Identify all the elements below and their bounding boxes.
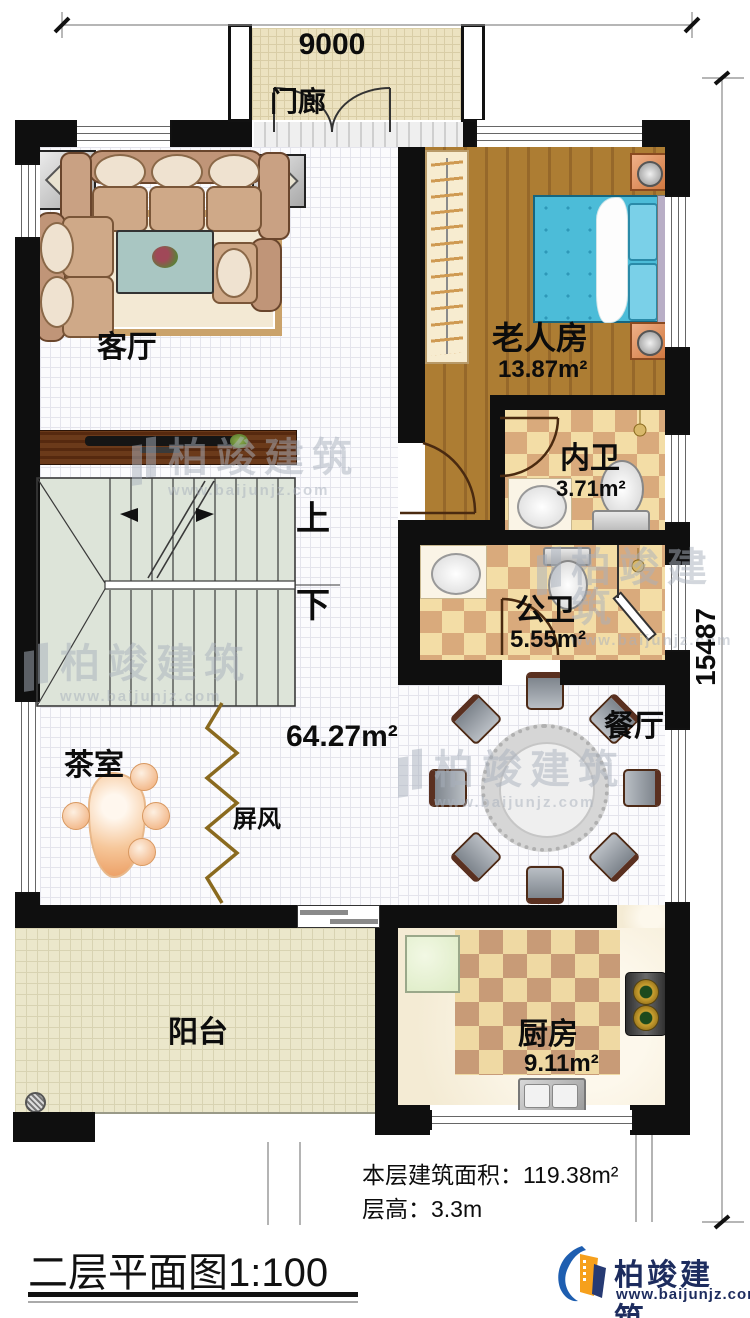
dining-chair: [429, 769, 467, 807]
brand-name: 柏竣建筑: [614, 1250, 742, 1318]
wall: [665, 120, 690, 195]
tea-stool: [128, 838, 156, 866]
dimension-top-value: 9000: [262, 30, 402, 60]
burner: [633, 1005, 659, 1031]
room-label-inner-bath: 内卫: [560, 444, 620, 474]
wall: [560, 660, 690, 685]
room-label-dining: 餐厅: [604, 712, 664, 742]
wall: [463, 120, 475, 147]
window: [75, 120, 172, 147]
tv: [85, 436, 235, 446]
wall: [490, 410, 505, 530]
blanket: [596, 197, 628, 323]
plant: [230, 434, 248, 448]
lamp: [637, 161, 663, 187]
public-bath-sink-counter: [420, 545, 487, 599]
window: [665, 433, 690, 524]
wall: [398, 147, 425, 443]
title-underline-thin: [28, 1301, 358, 1303]
kitchen-window: [430, 1110, 634, 1130]
dimension-right-value: 15487: [692, 608, 720, 686]
lamp: [637, 330, 663, 356]
room-area-inner-bath: 3.71m²: [556, 478, 626, 500]
sink-basin: [552, 1084, 578, 1108]
tea-stool: [62, 802, 90, 830]
wall: [15, 120, 40, 163]
wall: [490, 530, 690, 545]
wall: [375, 1105, 430, 1135]
wall: [398, 660, 502, 685]
room-area-kitchen: 9.11m²: [524, 1052, 599, 1076]
sliding-panel: [300, 910, 348, 915]
plan-scale: 1:100: [228, 1251, 328, 1295]
room-label-elder: 老人房: [492, 322, 588, 354]
stove: [625, 972, 667, 1036]
sofa-cushion: [94, 154, 146, 190]
sofa-seat: [206, 186, 262, 232]
armchair-cushion: [216, 248, 252, 298]
corner-sofa-cushion: [40, 276, 74, 328]
floor-drain: [25, 1092, 46, 1113]
sliding-door: [297, 905, 380, 928]
sofa-seat: [149, 186, 205, 232]
wall: [15, 235, 40, 700]
wall: [630, 1105, 690, 1135]
room-area-elder: 13.87m²: [498, 358, 587, 382]
pillow: [628, 263, 658, 321]
stairs-floor: [37, 478, 295, 706]
floor-height-text: 层高：3.3m: [362, 1190, 482, 1224]
wall: [13, 1112, 95, 1142]
dining-chair: [526, 672, 564, 710]
plan-title: 二层平面图1:100: [28, 1240, 328, 1298]
title-underline-thick: [28, 1292, 358, 1297]
window: [665, 195, 690, 349]
window: [15, 700, 40, 894]
table-flowers: [152, 246, 178, 268]
dining-table-top: [499, 742, 595, 838]
brand-logo: 柏竣建筑 www.baijunjz.com: [552, 1244, 742, 1306]
sofa-cushion: [151, 154, 203, 190]
wall: [15, 905, 297, 928]
brand-logo-icon: [552, 1244, 610, 1302]
burner: [633, 979, 659, 1005]
wall: [398, 545, 420, 660]
wall: [168, 120, 252, 147]
nightstand: [630, 153, 667, 191]
kitchen-entry-floor: [617, 905, 665, 928]
window: [15, 163, 40, 239]
dining-chair: [526, 866, 564, 904]
corner-sofa-cushion: [40, 222, 74, 274]
room-label-tea: 茶室: [64, 751, 124, 781]
tv-stand: [140, 447, 180, 453]
fridge: [405, 935, 460, 993]
stairs-up-label: 上: [296, 502, 330, 536]
room-area-public-bath: 5.55m²: [510, 628, 586, 652]
room-label-public-bath: 公卫: [515, 596, 575, 626]
wall: [380, 905, 617, 928]
room-label-porch: 门廊: [270, 88, 326, 116]
porch-column: [461, 24, 485, 122]
floor-area-text: 本层建筑面积：119.38m²: [362, 1156, 618, 1190]
pillow: [628, 203, 658, 261]
dining-chair: [623, 769, 661, 807]
sofa-arm-right: [258, 152, 290, 240]
sink-basin: [431, 553, 481, 595]
hall-area-label: 64.27m²: [286, 722, 398, 752]
window: [475, 120, 644, 147]
room-label-kitchen: 厨房: [518, 1020, 578, 1050]
window: [665, 563, 690, 652]
tea-stool: [130, 763, 158, 791]
porch-step: [254, 122, 463, 147]
wardrobe: [425, 150, 469, 364]
floor-plan: 柏竣建筑 www.baijunjz.com 柏竣建筑 www.baijunjz.…: [0, 0, 750, 1318]
nightstand: [630, 322, 667, 360]
wall: [375, 928, 398, 1108]
porch-column: [228, 24, 252, 122]
room-label-balcony: 阳台: [168, 1018, 228, 1048]
hangers: [431, 156, 463, 355]
sofa-cushion: [208, 154, 260, 190]
brand-url: www.baijunjz.com: [616, 1286, 750, 1303]
stairs-down-label: 下: [296, 589, 330, 623]
room-label-living: 客厅: [97, 333, 157, 363]
wall: [398, 520, 505, 545]
sink-basin: [524, 1084, 550, 1108]
wall: [665, 900, 690, 1135]
plan-title-text: 二层平面图: [28, 1251, 228, 1295]
tea-stool: [142, 802, 170, 830]
window: [665, 728, 690, 904]
screen-label: 屏风: [233, 808, 281, 832]
sliding-panel: [330, 919, 378, 924]
wall: [490, 395, 665, 410]
wall: [665, 345, 690, 433]
